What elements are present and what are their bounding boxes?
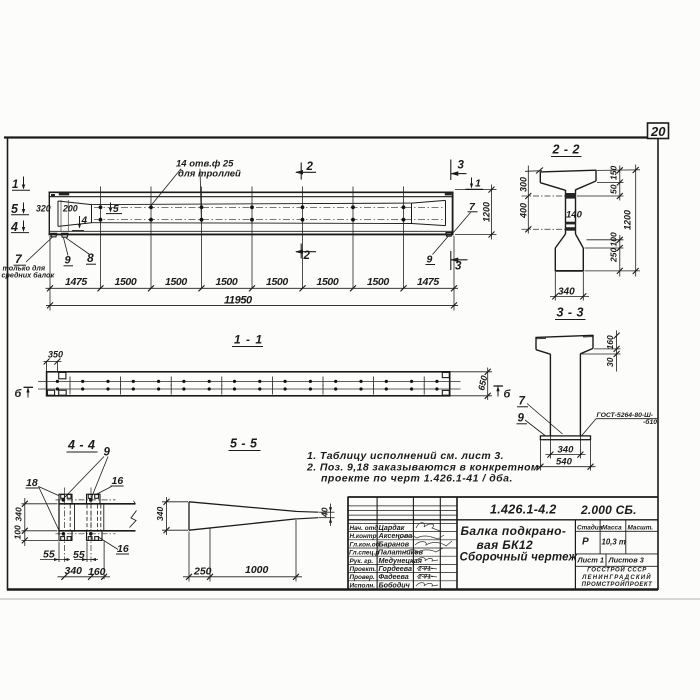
- svg-text:55: 55: [43, 549, 55, 561]
- svg-text:1000: 1000: [245, 564, 269, 576]
- svg-text:320: 320: [36, 204, 51, 214]
- svg-text:Гл.кон.об: Гл.кон.об: [350, 540, 381, 548]
- svg-text:7: 7: [519, 396, 526, 408]
- svg-text:160: 160: [88, 566, 106, 578]
- svg-text:16: 16: [117, 543, 129, 555]
- svg-text:10,3 т: 10,3 т: [602, 538, 626, 547]
- svg-text:5 - 5: 5 - 5: [230, 437, 258, 451]
- svg-text:Нач. отд: Нач. отд: [350, 524, 379, 532]
- svg-text:1: 1: [475, 178, 481, 190]
- svg-text:1500: 1500: [317, 276, 339, 288]
- svg-text:18: 18: [26, 477, 38, 489]
- svg-text:540: 540: [556, 457, 573, 468]
- svg-text:1500: 1500: [115, 276, 137, 288]
- svg-text:Балка подкрано-: Балка подкрано-: [461, 524, 567, 538]
- svg-text:9: 9: [427, 254, 433, 266]
- svg-text:ГОСТ-5264-80-Ш-: ГОСТ-5264-80-Ш-: [597, 412, 654, 419]
- svg-text:ПРОМСТРОЙПРОЕКТ: ПРОМСТРОЙПРОЕКТ: [582, 580, 653, 588]
- svg-text:40: 40: [320, 507, 330, 518]
- svg-text:1500: 1500: [216, 276, 238, 288]
- svg-text:4 - 4: 4 - 4: [67, 438, 96, 452]
- svg-text:Масшт.: Масшт.: [628, 524, 654, 531]
- svg-text:вая БК12: вая БК12: [477, 538, 534, 552]
- svg-text:150: 150: [609, 166, 619, 180]
- svg-text:3: 3: [455, 261, 462, 273]
- svg-text:200: 200: [62, 204, 78, 214]
- svg-text:1200: 1200: [623, 210, 633, 230]
- svg-text:16: 16: [112, 475, 124, 487]
- svg-text:Листов 3: Листов 3: [608, 555, 645, 564]
- svg-text:2: 2: [306, 161, 314, 173]
- svg-text:1500: 1500: [165, 276, 187, 288]
- svg-text:340: 340: [14, 507, 24, 521]
- svg-text:2-71-: 2-71-: [417, 566, 433, 573]
- svg-text:Масса: Масса: [602, 524, 622, 531]
- svg-text:4: 4: [10, 220, 18, 234]
- svg-text:Стадия: Стадия: [577, 523, 603, 531]
- svg-text:2-71-: 2-71-: [417, 574, 433, 581]
- svg-text:для троллей: для троллей: [178, 169, 241, 180]
- svg-text:2 - 2: 2 - 2: [552, 143, 581, 157]
- svg-text:ГОССТРОЙ СССР: ГОССТРОЙ СССР: [587, 566, 647, 574]
- svg-text:1.426.1-4.2: 1.426.1-4.2: [490, 503, 557, 517]
- svg-text:50: 50: [609, 184, 619, 194]
- svg-text:30: 30: [605, 357, 615, 367]
- svg-text:1. Таблицу исполнений см. ли: 1. Таблицу исполнений см. лист 3.: [307, 450, 504, 462]
- svg-text:340: 340: [558, 287, 575, 298]
- svg-text:140: 140: [566, 210, 583, 221]
- svg-text:340: 340: [155, 507, 165, 521]
- svg-text:средних балок: средних балок: [2, 271, 55, 280]
- svg-text:250: 250: [193, 566, 212, 578]
- svg-text:2.000 СБ.: 2.000 СБ.: [580, 503, 637, 517]
- svg-text:Исполн.: Исполн.: [350, 582, 376, 589]
- svg-text:55: 55: [73, 549, 85, 561]
- svg-text:9: 9: [104, 447, 111, 459]
- svg-text:20: 20: [650, 124, 666, 139]
- svg-text:б: б: [504, 389, 512, 401]
- svg-text:4: 4: [81, 216, 88, 227]
- svg-text:250: 250: [609, 248, 619, 263]
- svg-text:3 - 3: 3 - 3: [557, 306, 585, 320]
- svg-text:9: 9: [518, 413, 525, 425]
- svg-text:Рук. гр.: Рук. гр.: [350, 558, 374, 565]
- svg-text:б: б: [15, 388, 23, 400]
- svg-text:9: 9: [65, 255, 72, 267]
- svg-text:1475: 1475: [417, 276, 439, 288]
- svg-text:Лист 1: Лист 1: [577, 555, 604, 564]
- svg-text:5: 5: [11, 202, 19, 216]
- svg-text:1475: 1475: [65, 276, 87, 288]
- svg-text:100: 100: [13, 525, 23, 539]
- svg-text:340: 340: [65, 565, 83, 577]
- svg-text:3: 3: [458, 160, 465, 172]
- svg-text:проекте по черт 1.426.1-41: проекте по черт 1.426.1-41 / дба.: [321, 473, 513, 485]
- svg-text:Проект.: Проект.: [350, 566, 377, 573]
- svg-text:340: 340: [558, 445, 575, 456]
- svg-text:Провер.: Провер.: [350, 574, 376, 581]
- svg-text:1500: 1500: [367, 276, 389, 288]
- svg-text:Н.контр.: Н.контр.: [350, 533, 379, 540]
- svg-text:Гл.спец.р: Гл.спец.р: [349, 550, 379, 557]
- svg-text:11950: 11950: [224, 295, 253, 307]
- svg-text:-б10: -б10: [643, 418, 657, 426]
- svg-text:1 - 1: 1 - 1: [234, 333, 263, 347]
- svg-text:400: 400: [519, 203, 529, 219]
- svg-text:350: 350: [48, 350, 63, 360]
- svg-text:Р: Р: [582, 537, 589, 548]
- svg-text:160: 160: [605, 335, 615, 349]
- svg-text:1500: 1500: [266, 276, 288, 288]
- svg-text:Бободич: Бободич: [379, 580, 411, 589]
- svg-text:2: 2: [303, 250, 311, 262]
- svg-text:1: 1: [12, 179, 18, 191]
- svg-text:300: 300: [519, 177, 529, 192]
- svg-text:1200: 1200: [482, 202, 492, 222]
- svg-text:Сборочный чертеж: Сборочный чертеж: [460, 552, 578, 564]
- svg-text:100: 100: [609, 232, 619, 246]
- svg-text:ЛЕНИНГРАДСКИЙ: ЛЕНИНГРАДСКИЙ: [581, 573, 652, 581]
